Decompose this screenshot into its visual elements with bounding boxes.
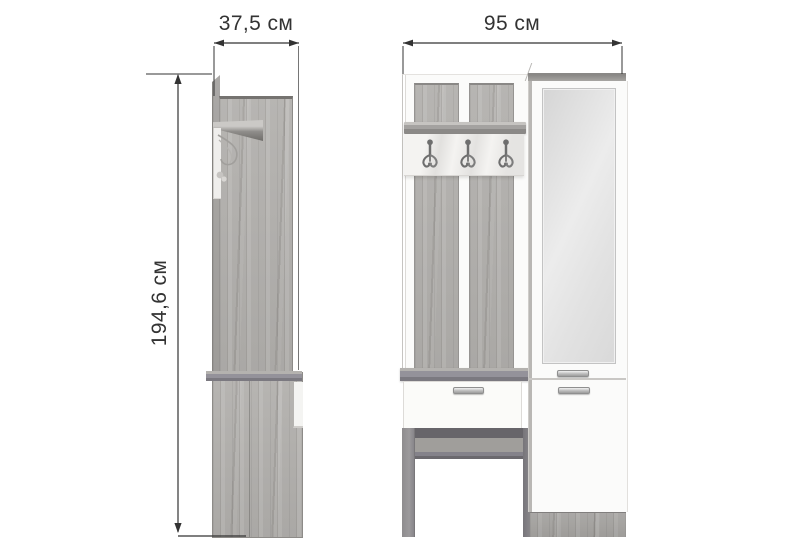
coat-hook-icon [456,138,480,174]
wire-hook-icon [212,132,246,188]
coat-hook-icon [494,138,518,174]
open-niche [413,428,523,459]
drawer-front [403,381,522,430]
hook-rail [404,134,524,176]
top-shelf [404,122,526,134]
width-dimension-label: 95 см [452,12,572,36]
drawer-handle [453,387,484,394]
cabinet-plinth [530,512,626,537]
hook-ball-2 [221,176,226,181]
mirror-door-handle [557,370,589,377]
bench-seam [249,373,250,537]
front-counter-top [400,368,530,381]
mirror-cabinet [528,53,628,537]
depth-dimension-label: 37,5 см [196,12,316,36]
front-view [340,0,800,560]
cabinet-divider [528,378,626,380]
side-drawer-edge [293,382,303,428]
cabinet-top-edge [528,73,626,81]
side-bench-cabinet [212,372,303,538]
coat-hook-icon [418,138,442,174]
height-dimension-label: 194,6 см [148,238,172,368]
side-counter-top [206,371,302,381]
lower-door-handle [558,387,590,394]
left-leg [402,428,415,537]
mirror [542,88,616,364]
furniture-dimension-diagram: 37,5 см 95 см 194,6 см [0,0,800,560]
wire-curl-1 [218,135,237,165]
